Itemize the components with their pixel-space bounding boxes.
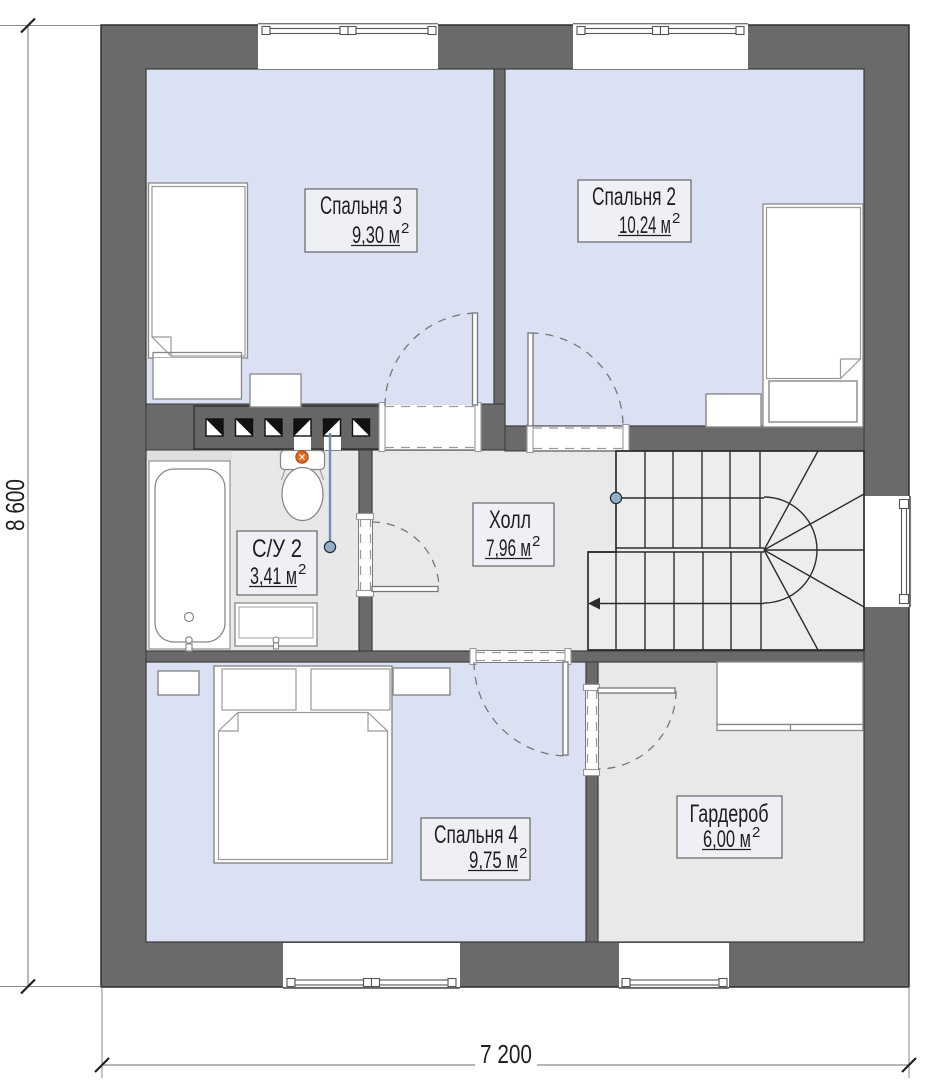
svg-text:2: 2 <box>298 561 306 578</box>
svg-text:2: 2 <box>672 210 680 227</box>
svg-text:Спальня 3: Спальня 3 <box>320 192 402 220</box>
svg-text:2: 2 <box>519 845 527 862</box>
svg-text:2: 2 <box>401 220 409 237</box>
svg-text:С/У 2: С/У 2 <box>252 535 302 563</box>
svg-text:2: 2 <box>532 533 540 550</box>
svg-text:Холл: Холл <box>489 506 531 534</box>
svg-text:7 200: 7 200 <box>480 1039 532 1069</box>
svg-text:2: 2 <box>752 824 760 841</box>
svg-text:Спальня 4: Спальня 4 <box>434 821 518 849</box>
svg-text:8 600: 8 600 <box>0 479 30 531</box>
svg-text:Спальня 2: Спальня 2 <box>592 183 676 211</box>
